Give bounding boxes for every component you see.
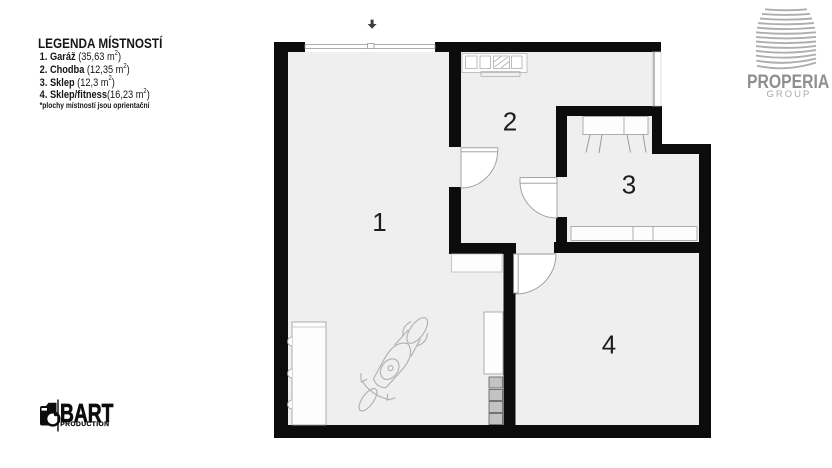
svg-text:3: 3 <box>622 170 636 200</box>
svg-text:2: 2 <box>503 107 517 137</box>
svg-text:4: 4 <box>602 330 616 360</box>
svg-text:1: 1 <box>372 207 386 237</box>
